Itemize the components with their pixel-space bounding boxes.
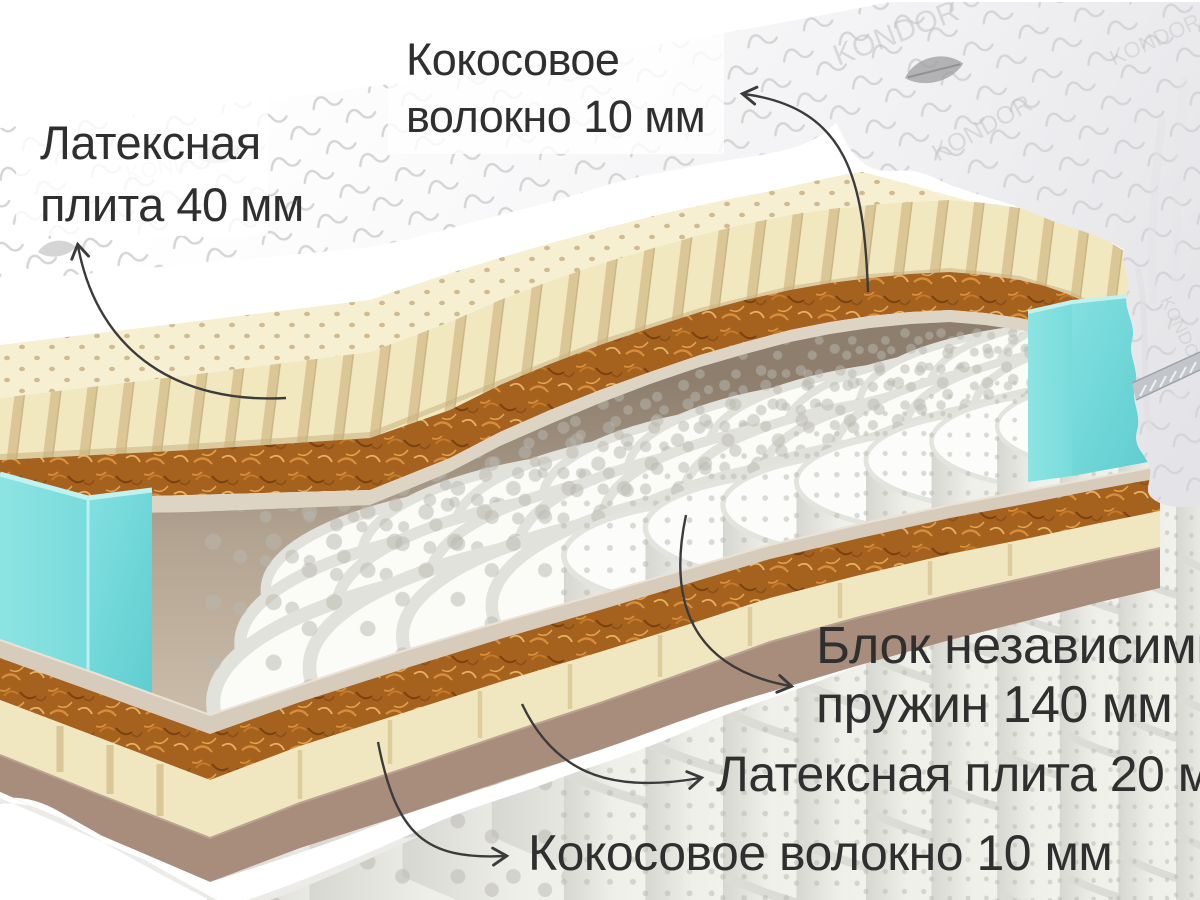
- mattress-diagram: KONDOR KONDOR KONDOR KONDOR KONDOR Латек…: [0, 0, 1200, 900]
- label-latex-40mm: Латексная плита 40 мм: [40, 112, 304, 236]
- label-coconut-top: Кокосовое волокно 10 мм: [406, 31, 705, 145]
- label-line: Латексная: [40, 112, 304, 174]
- foam-edge-side-block: [1028, 294, 1148, 482]
- label-line: волокно 10 мм: [406, 88, 705, 145]
- label-line: плита 40 мм: [40, 174, 304, 236]
- label-line: Блок независимых: [816, 617, 1200, 676]
- label-line: пружин 140 мм: [816, 676, 1200, 735]
- label-spring-block: Блок независимых пружин 140 мм: [816, 617, 1200, 735]
- label-line: Кокосовое: [406, 31, 705, 88]
- label-coconut-bottom: Кокосовое волокно 10 мм: [528, 823, 1112, 883]
- label-latex-20mm: Латексная плита 20 мм: [716, 744, 1200, 804]
